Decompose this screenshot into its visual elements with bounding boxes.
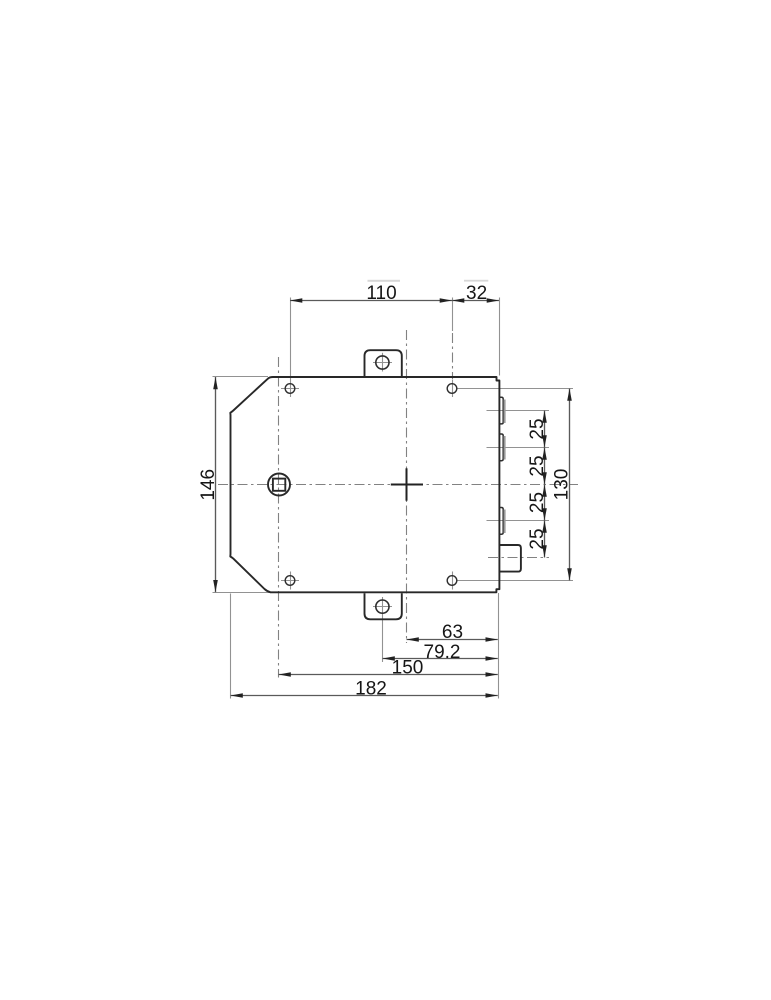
svg-text:182: 182	[355, 678, 387, 699]
svg-text:110: 110	[366, 283, 396, 304]
svg-text:79.2: 79.2	[424, 642, 461, 663]
svg-text:63: 63	[442, 622, 463, 643]
svg-text:150: 150	[392, 657, 424, 678]
svg-text:146: 146	[198, 469, 219, 501]
svg-text:25: 25	[527, 455, 548, 476]
svg-text:25: 25	[527, 492, 548, 513]
svg-text:32: 32	[466, 283, 487, 304]
svg-text:25: 25	[527, 418, 548, 439]
svg-text:25: 25	[527, 528, 548, 549]
svg-text:130: 130	[551, 469, 572, 501]
